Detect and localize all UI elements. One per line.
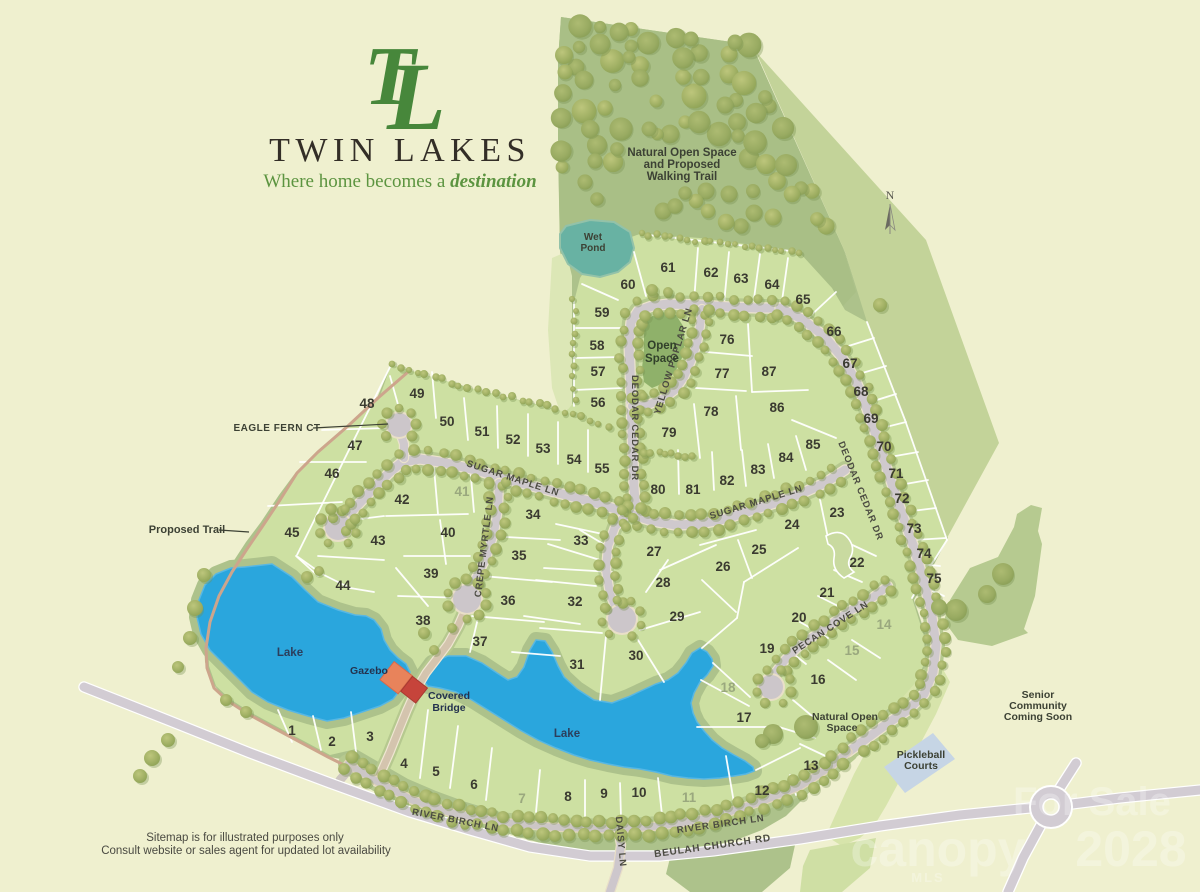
svg-text:59: 59	[594, 305, 609, 320]
svg-text:52: 52	[505, 432, 520, 447]
svg-text:62: 62	[703, 265, 718, 280]
svg-text:For Sale: For Sale	[1013, 780, 1171, 824]
svg-text:3: 3	[366, 729, 374, 744]
svg-text:Walking Trail: Walking Trail	[647, 171, 718, 183]
svg-text:1: 1	[288, 723, 296, 738]
svg-text:46: 46	[324, 466, 340, 481]
svg-text:37: 37	[472, 634, 487, 649]
svg-text:18: 18	[720, 680, 736, 695]
svg-text:34: 34	[525, 507, 541, 522]
svg-text:26: 26	[715, 559, 731, 574]
svg-text:Consult website or sales agent: Consult website or sales agent for updat…	[101, 845, 391, 857]
svg-text:31: 31	[569, 657, 585, 672]
svg-text:30: 30	[628, 648, 643, 663]
svg-text:19: 19	[759, 641, 774, 656]
svg-text:49: 49	[409, 386, 424, 401]
svg-text:47: 47	[347, 438, 362, 453]
svg-text:75: 75	[926, 571, 942, 586]
svg-text:63: 63	[733, 271, 749, 286]
svg-text:Wet: Wet	[584, 232, 603, 243]
svg-text:41: 41	[454, 484, 470, 499]
svg-text:Lake: Lake	[277, 647, 303, 659]
svg-text:7: 7	[518, 791, 526, 806]
svg-text:81: 81	[685, 482, 701, 497]
svg-text:72: 72	[894, 491, 909, 506]
svg-text:84: 84	[778, 450, 794, 465]
svg-text:6: 6	[470, 777, 478, 792]
svg-text:29: 29	[669, 609, 684, 624]
svg-text:Coming Soon: Coming Soon	[1004, 711, 1072, 723]
svg-text:73: 73	[906, 521, 922, 536]
svg-text:43: 43	[370, 533, 386, 548]
svg-text:54: 54	[566, 452, 582, 467]
svg-text:39: 39	[423, 566, 438, 581]
svg-text:58: 58	[589, 338, 605, 353]
svg-text:2028: 2028	[1075, 821, 1186, 877]
svg-text:51: 51	[474, 424, 490, 439]
svg-text:42: 42	[394, 492, 409, 507]
svg-text:MLS: MLS	[911, 870, 944, 885]
svg-text:60: 60	[620, 277, 635, 292]
svg-text:12: 12	[754, 783, 769, 798]
svg-text:48: 48	[359, 396, 375, 411]
svg-text:23: 23	[829, 505, 845, 520]
svg-text:83: 83	[750, 462, 766, 477]
svg-text:74: 74	[916, 546, 932, 561]
svg-text:27: 27	[646, 544, 661, 559]
svg-text:Gazebo: Gazebo	[350, 665, 388, 677]
svg-text:20: 20	[791, 610, 806, 625]
svg-text:78: 78	[703, 404, 719, 419]
svg-text:86: 86	[769, 400, 785, 415]
svg-text:33: 33	[573, 533, 589, 548]
svg-text:13: 13	[803, 758, 819, 773]
svg-text:Covered: Covered	[428, 690, 470, 702]
svg-text:66: 66	[826, 324, 842, 339]
svg-text:40: 40	[440, 525, 455, 540]
svg-text:57: 57	[590, 364, 605, 379]
svg-text:77: 77	[714, 366, 729, 381]
svg-text:32: 32	[567, 594, 582, 609]
svg-text:45: 45	[284, 525, 300, 540]
svg-text:14: 14	[876, 617, 892, 632]
svg-text:Sitemap is for illustrated pur: Sitemap is for illustrated purposes only	[146, 832, 344, 844]
svg-text:4: 4	[400, 756, 408, 771]
svg-text:11: 11	[682, 790, 697, 805]
svg-text:Proposed Trail: Proposed Trail	[149, 524, 225, 536]
svg-text:61: 61	[660, 260, 676, 275]
svg-text:Courts: Courts	[904, 760, 938, 772]
svg-text:87: 87	[761, 364, 776, 379]
svg-text:21: 21	[819, 585, 835, 600]
svg-text:Bridge: Bridge	[432, 702, 465, 714]
svg-text:Where home becomes a destinati: Where home becomes a destination	[263, 171, 536, 192]
svg-text:80: 80	[650, 482, 665, 497]
svg-text:DEODAR CEDAR DR: DEODAR CEDAR DR	[629, 375, 640, 481]
svg-text:Space: Space	[827, 722, 858, 734]
svg-text:17: 17	[736, 710, 751, 725]
svg-text:TWIN LAKES: TWIN LAKES	[269, 132, 531, 169]
svg-text:8: 8	[564, 789, 572, 804]
svg-text:65: 65	[795, 292, 811, 307]
svg-text:2: 2	[328, 734, 336, 749]
svg-text:Pond: Pond	[581, 243, 606, 254]
svg-text:53: 53	[535, 441, 551, 456]
svg-text:44: 44	[335, 578, 351, 593]
svg-text:82: 82	[719, 473, 734, 488]
svg-text:64: 64	[764, 277, 780, 292]
svg-text:71: 71	[888, 466, 904, 481]
svg-text:10: 10	[631, 785, 646, 800]
svg-text:Natural Open Space: Natural Open Space	[627, 147, 736, 159]
svg-text:79: 79	[661, 425, 676, 440]
svg-text:Open: Open	[647, 340, 676, 352]
svg-text:76: 76	[719, 332, 735, 347]
svg-text:68: 68	[853, 384, 869, 399]
svg-text:85: 85	[805, 437, 821, 452]
svg-text:22: 22	[849, 555, 864, 570]
svg-text:N: N	[886, 188, 895, 202]
svg-text:15: 15	[844, 643, 860, 658]
svg-text:38: 38	[415, 613, 431, 628]
svg-text:36: 36	[500, 593, 516, 608]
svg-text:28: 28	[655, 575, 671, 590]
svg-text:56: 56	[590, 395, 606, 410]
svg-text:25: 25	[751, 542, 767, 557]
svg-text:5: 5	[432, 764, 440, 779]
svg-text:canopy: canopy	[850, 821, 1025, 877]
svg-text:69: 69	[863, 411, 878, 426]
svg-text:16: 16	[810, 672, 826, 687]
svg-text:70: 70	[876, 439, 891, 454]
svg-text:EAGLE FERN CT: EAGLE FERN CT	[233, 423, 320, 434]
svg-text:50: 50	[439, 414, 454, 429]
svg-text:and Proposed: and Proposed	[644, 159, 721, 171]
svg-text:55: 55	[594, 461, 610, 476]
svg-text:35: 35	[511, 548, 527, 563]
svg-text:9: 9	[600, 786, 608, 801]
svg-text:Space: Space	[645, 353, 679, 365]
svg-text:67: 67	[842, 356, 857, 371]
svg-text:24: 24	[784, 517, 800, 532]
svg-text:Lake: Lake	[554, 728, 580, 740]
